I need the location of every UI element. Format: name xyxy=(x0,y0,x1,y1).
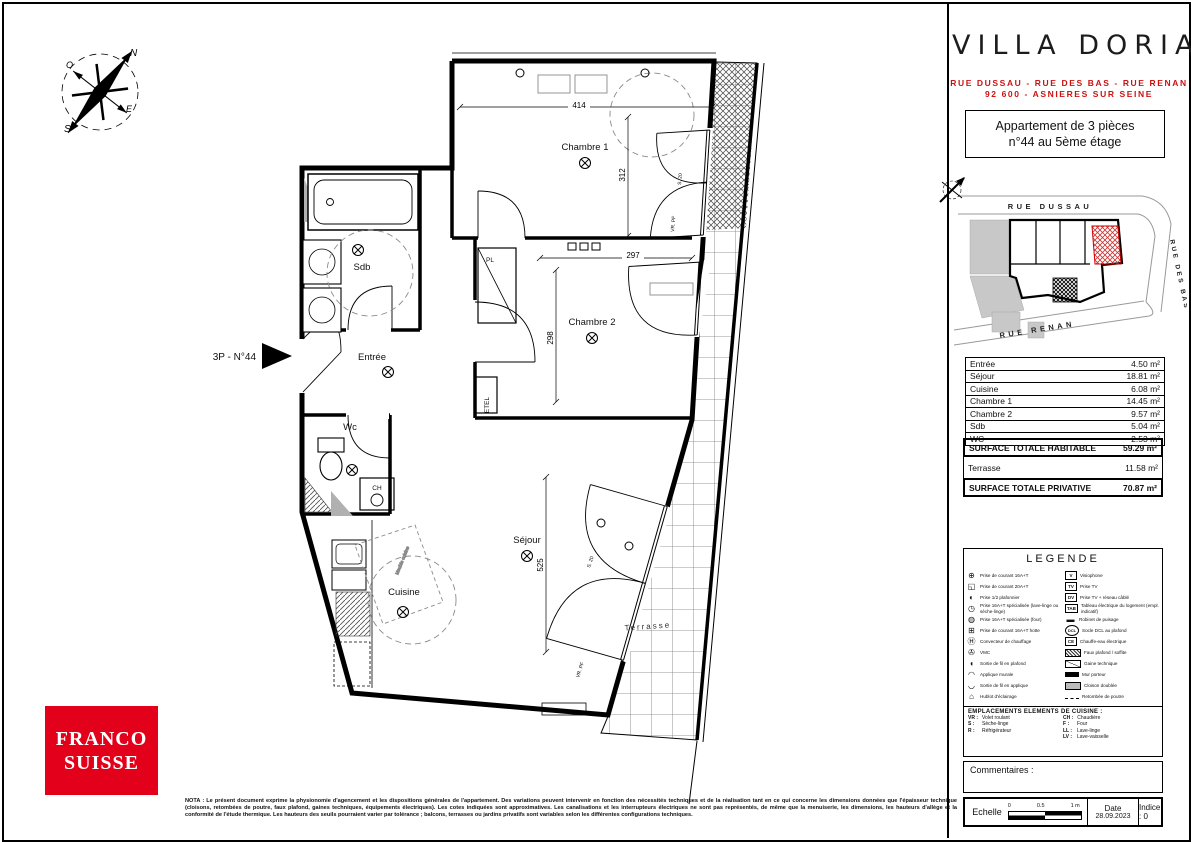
ceiling-wire-icon: ◖ xyxy=(966,659,977,668)
room-label-chambre1: Chambre 1 xyxy=(562,142,609,153)
room-label-chambre2: Chambre 2 xyxy=(569,317,616,328)
label-ch: CH xyxy=(372,485,382,492)
compass-n: N xyxy=(130,48,138,59)
legend-item: DVPrise TV + réseau câblé xyxy=(1063,592,1162,603)
visiophone-icon: V xyxy=(1065,571,1077,580)
label-pl: PL xyxy=(486,257,494,264)
room-name: Chambre 2 xyxy=(970,409,1012,419)
terrasse-value: 11.58 m² xyxy=(1125,463,1158,473)
table-row: Cuisine6.08 m² xyxy=(966,383,1164,396)
dim-414: 414 xyxy=(572,101,586,110)
index-value: Indice : 0 xyxy=(1139,803,1161,821)
false-ceiling-swatch-icon xyxy=(1065,649,1081,657)
half-ceiling-outlet-icon: ◐ xyxy=(966,593,977,602)
compass-s: S xyxy=(64,124,71,135)
total-privative-row: SURFACE TOTALE PRIVATIVE 70.87 m² xyxy=(963,478,1163,497)
dim-297: 297 xyxy=(626,251,640,260)
hood-outlet-icon: ⊞ xyxy=(966,626,977,635)
date-label: Date xyxy=(1105,804,1122,813)
table-row: Chambre 29.57 m² xyxy=(966,408,1164,421)
water-heater-icon: CE xyxy=(1065,637,1077,646)
legend-item: ▬Robinet de puisage xyxy=(1063,614,1162,625)
wall-light-icon: ◠ xyxy=(966,670,977,679)
comments-box: Commentaires : xyxy=(963,761,1163,793)
washer-outlet-icon: ◷ xyxy=(966,604,977,613)
closets xyxy=(360,248,516,510)
room-area: 9.57 m² xyxy=(1131,409,1160,419)
legend-item: ◡Sortie de fil en applique xyxy=(964,680,1063,691)
compass-e: E xyxy=(126,104,133,114)
kitchen-elements-section: EMPLACEMENTS ELEMENTS DE CUISINE : VR :V… xyxy=(964,706,1162,741)
scale-cell: Echelle 0 0.5 1 m xyxy=(965,799,1088,825)
total-privative-value: 70.87 m² xyxy=(1123,483,1157,493)
legend-item: ◷Prise 16A+T spécialisée (lave-linge ou … xyxy=(964,603,1063,614)
legend-item: TABTableau électrique du logement (empl.… xyxy=(1063,603,1162,614)
room-label-wc: Wc xyxy=(343,422,357,433)
vmc-icon: ✇ xyxy=(966,648,977,657)
outlet-16a-icon: ⊕ xyxy=(966,571,977,580)
wall-wire-icon: ◡ xyxy=(966,681,977,690)
project-address: RUE DUSSAU - RUE DES BAS - RUE RENAN 92 … xyxy=(950,78,1188,100)
room-label-cuisine: Cuisine xyxy=(388,587,420,598)
label-s20-a: S. 20 xyxy=(677,173,684,185)
address-line2: 92 600 - ASNIERES SUR SEINE xyxy=(950,89,1188,100)
logo-line1: FRANCO xyxy=(56,727,148,751)
heater-icon: Ⓗ xyxy=(966,637,977,646)
partition-swatch-icon xyxy=(1065,682,1081,690)
legend-box: LEGENDE ⊕Prise de courant 16A+T ◱Prise d… xyxy=(963,548,1163,757)
total-habitable-label: SURFACE TOTALE HABITABLE xyxy=(969,443,1096,453)
unit-tag: 3P - N°44 xyxy=(213,343,292,369)
site-plan: RUE DUSSAU RUE DES BAS RUE RENAN xyxy=(930,160,1187,350)
dim-525: 525 xyxy=(536,558,545,572)
legend-item: CEChauffe-eau électrique xyxy=(1063,636,1162,647)
legend-item: ◠Applique murale xyxy=(964,669,1063,680)
franco-suisse-logo: FRANCO SUISSE xyxy=(45,706,158,795)
room-name: Entrée xyxy=(970,359,995,369)
kitchen-unit-label: Meuble cuisine xyxy=(394,545,410,575)
room-name: Séjour xyxy=(970,371,995,381)
legend-left-column: ⊕Prise de courant 16A+T ◱Prise de couran… xyxy=(964,570,1063,702)
project-title: VILLA DORIA xyxy=(952,30,1186,61)
date-value: 28.09.2023 xyxy=(1095,813,1130,820)
dcl-icon: DCL xyxy=(1065,625,1079,636)
dim-312: 312 xyxy=(618,168,627,182)
legend-item: ⌂Hublot d'éclairage xyxy=(964,691,1063,702)
dome-light-icon: ⌂ xyxy=(966,692,977,701)
washbasins xyxy=(303,240,341,332)
index-cell: Indice : 0 xyxy=(1139,799,1161,825)
bathtub xyxy=(308,174,418,230)
room-label-sdb: Sdb xyxy=(354,262,371,273)
dim-298: 298 xyxy=(546,331,555,345)
street-right-label: RUE DES BAS xyxy=(1168,239,1187,311)
kitchen-item: R :Réfrigérateur xyxy=(968,728,1063,734)
tv-network-icon: DV xyxy=(1065,593,1077,602)
legend-item: Mur porteur xyxy=(1063,669,1162,680)
compass-rose: N E S O xyxy=(41,30,159,154)
label-s20-b: S. 20 xyxy=(586,555,595,568)
table-row: Séjour18.81 m² xyxy=(966,371,1164,384)
legend-item: ✇VMC xyxy=(964,647,1063,658)
legend-item: Gaine technique xyxy=(1063,658,1162,669)
legend-item: ◱Prise de courant 20A+T xyxy=(964,581,1063,592)
site-compass-icon xyxy=(940,178,964,202)
legend-item: DCLSocle DCL au plafond xyxy=(1063,625,1162,636)
legend-item: ◍Prise 16A+T spécialisée (four) xyxy=(964,614,1063,625)
table-row: Chambre 114.45 m² xyxy=(966,396,1164,409)
tv-outlet-icon: TV xyxy=(1065,582,1077,591)
nota-disclaimer: NOTA : Le présent document exprime la ph… xyxy=(185,798,957,819)
room-area: 4.50 m² xyxy=(1131,359,1160,369)
legend-item: VVisiophone xyxy=(1063,570,1162,581)
legend-item: Cloison doublée xyxy=(1063,680,1162,691)
scale-label: Echelle xyxy=(972,807,1002,817)
site-unit-highlight xyxy=(1092,226,1121,264)
electrical-panel-icon: TAB xyxy=(1065,604,1078,613)
duct-swatch-icon xyxy=(1065,660,1081,668)
beam-swatch-icon xyxy=(1065,698,1079,699)
legend-item: ◖Sortie de fil en plafond xyxy=(964,658,1063,669)
legend-item: ◐Prise 1/2 plafonnier xyxy=(964,592,1063,603)
legend-title: LEGENDE xyxy=(964,553,1162,565)
terrace-area xyxy=(542,62,764,804)
comments-label: Commentaires : xyxy=(970,765,1034,775)
room-label-sejour: Séjour xyxy=(513,535,540,546)
unit-arrow-icon xyxy=(262,343,292,369)
scale-tick-0: 0 xyxy=(1008,803,1011,809)
label-etel: ETEL xyxy=(484,396,491,413)
room-area: 18.81 m² xyxy=(1126,371,1160,381)
scale-tick-1m: 1 m xyxy=(1071,803,1080,809)
room-area: 14.45 m² xyxy=(1126,396,1160,406)
title-block: Echelle 0 0.5 1 m Date 28.09.2023 Indice… xyxy=(963,797,1163,827)
room-label-entree: Entrée xyxy=(358,352,386,363)
compass-o: O xyxy=(66,60,73,70)
area-table: Entrée4.50 m² Séjour18.81 m² Cuisine6.08… xyxy=(965,357,1165,446)
kitchen-item: LV :Lave-vaisselle xyxy=(1063,734,1158,740)
label-vrpf-b: VR. PF xyxy=(575,661,586,678)
terrasse-label: Terrasse xyxy=(968,463,1001,473)
room-name: Sdb xyxy=(970,421,985,431)
address-line1: RUE DUSSAU - RUE DES BAS - RUE RENAN xyxy=(950,78,1188,89)
room-name: Chambre 1 xyxy=(970,396,1012,406)
legend-item: TVPrise TV xyxy=(1063,581,1162,592)
apartment-line1: Appartement de 3 pièces xyxy=(966,119,1164,133)
legend-item: ⒽConvecteur de chauffage xyxy=(964,636,1063,647)
unit-label: 3P - N°44 xyxy=(213,352,257,363)
outlet-20a-icon: ◱ xyxy=(966,582,977,591)
apartment-info-box: Appartement de 3 pièces n°44 au 5ème éta… xyxy=(965,110,1165,158)
load-wall-swatch-icon xyxy=(1065,672,1079,677)
total-habitable-row: SURFACE TOTALE HABITABLE 59.29 m² xyxy=(963,438,1163,457)
room-area: 6.08 m² xyxy=(1131,384,1160,394)
room-area: 5.04 m² xyxy=(1131,421,1160,431)
legend-item: ⊕Prise de courant 16A+T xyxy=(964,570,1063,581)
table-row: Entrée4.50 m² xyxy=(966,358,1164,371)
table-row: Sdb5.04 m² xyxy=(966,421,1164,434)
legend-item: ⊞Prise de courant 16A+T hotte xyxy=(964,625,1063,636)
tap-icon: ▬ xyxy=(1065,615,1076,624)
scale-tick-05: 0.5 xyxy=(1037,803,1045,809)
legend-right-column: VVisiophone TVPrise TV DVPrise TV + rése… xyxy=(1063,570,1162,702)
apartment-line2: n°44 au 5ème étage xyxy=(966,135,1164,149)
toilet xyxy=(318,438,344,480)
terrasse-row: Terrasse 11.58 m² xyxy=(963,457,1163,478)
legend-item: Faux plafond / soffite xyxy=(1063,647,1162,658)
total-privative-label: SURFACE TOTALE PRIVATIVE xyxy=(969,483,1091,493)
label-vrpf-a: VR. PF xyxy=(670,216,677,233)
street-top-label: RUE DUSSAU xyxy=(1008,202,1093,211)
date-cell: Date 28.09.2023 xyxy=(1088,799,1139,825)
panel-divider xyxy=(947,2,949,838)
room-name: Cuisine xyxy=(970,384,998,394)
scale-bar: 0 0.5 1 m xyxy=(1008,803,1080,821)
oven-outlet-icon: ◍ xyxy=(966,615,977,624)
total-habitable-value: 59.29 m² xyxy=(1123,443,1157,453)
logo-line2: SUISSE xyxy=(64,751,139,775)
legend-item: Retombée de poutre xyxy=(1063,691,1162,702)
